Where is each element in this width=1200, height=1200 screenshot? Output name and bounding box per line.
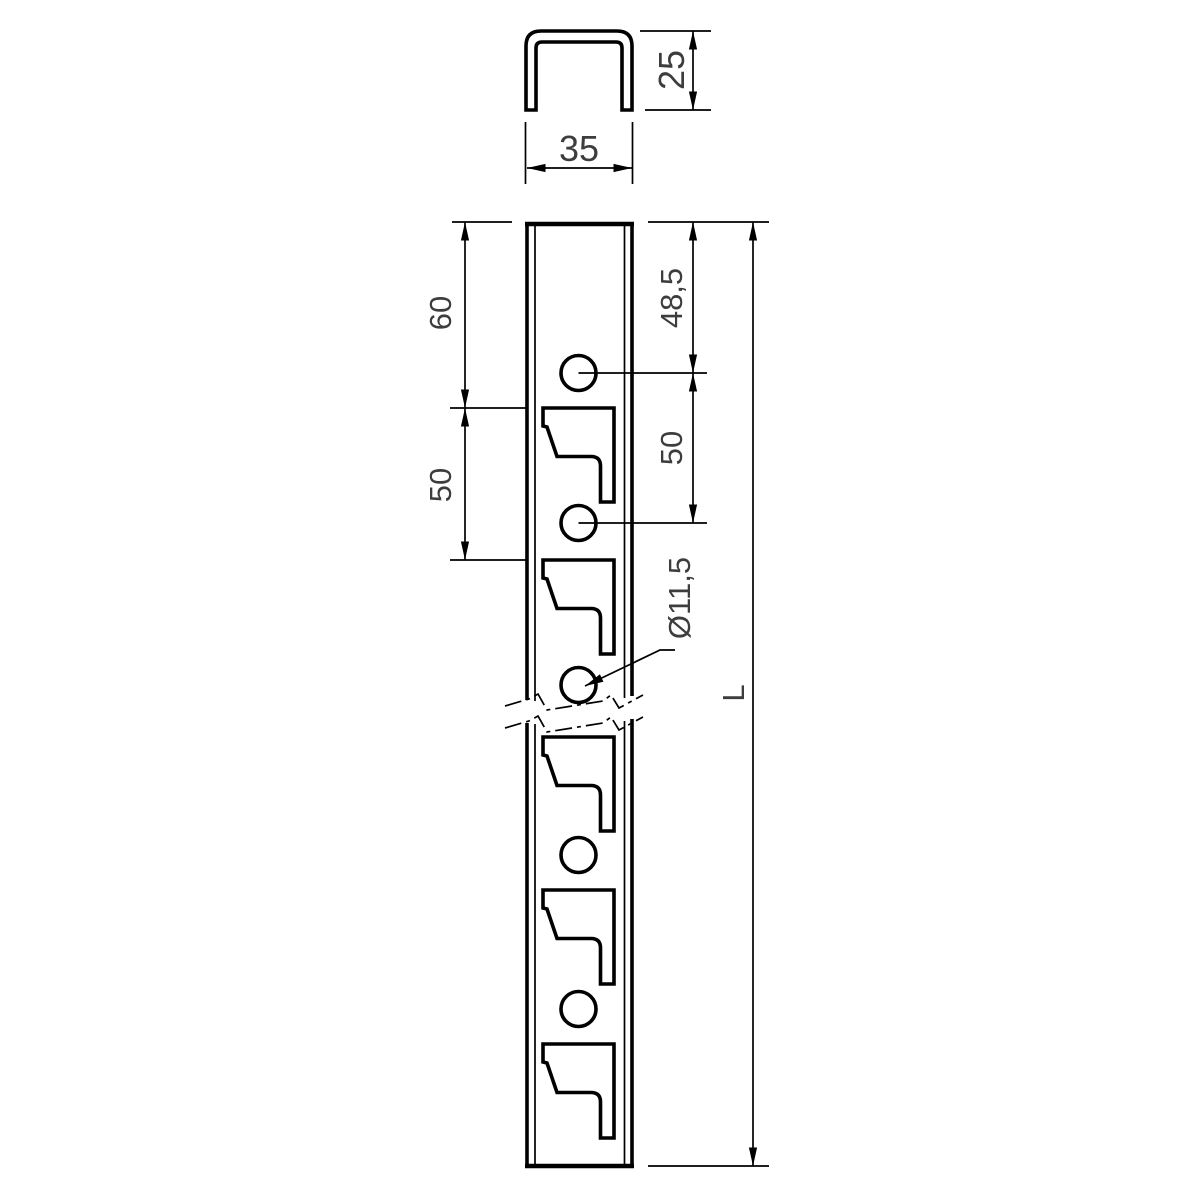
leader-line	[585, 650, 675, 686]
dimension-value-depth: 25	[651, 50, 692, 90]
dimension-value-width: 35	[559, 128, 599, 169]
dimension-value: 60	[423, 296, 458, 330]
hole-diameter-value: Ø11,5	[662, 557, 697, 639]
mounting-hole	[561, 668, 596, 703]
mounting-hole	[561, 992, 596, 1027]
dimension-right-50: 50	[579, 373, 708, 523]
dimension-value: 48,5	[654, 268, 689, 328]
dimension-value: 50	[654, 431, 689, 465]
profile-body	[505, 224, 643, 1166]
dimension-right-48-5: 48,5	[579, 222, 770, 373]
length-value: L	[716, 684, 751, 701]
u-profile-outline	[526, 31, 632, 110]
lance-cutout	[543, 737, 614, 831]
lance-cutout	[543, 1044, 614, 1138]
channel-profile-drawing: 25 35	[0, 0, 1200, 1200]
cross-section-view: 25 35	[526, 31, 712, 184]
lance-cutout	[543, 890, 614, 984]
dimension-value: 50	[423, 468, 458, 502]
lance-cutout	[543, 560, 614, 654]
profile-view: 60 50 48,5 50 Ø11,5	[423, 222, 769, 1166]
dimension-depth: 25	[640, 31, 711, 110]
technical-drawing-page: 25 35	[0, 0, 1200, 1200]
dimension-width: 35	[526, 122, 633, 184]
dimension-length: L	[648, 222, 769, 1166]
dimension-left-50: 50	[423, 408, 527, 560]
dimension-left-60: 60	[423, 222, 512, 408]
mounting-hole	[561, 838, 596, 873]
lance-cutout	[543, 408, 614, 502]
